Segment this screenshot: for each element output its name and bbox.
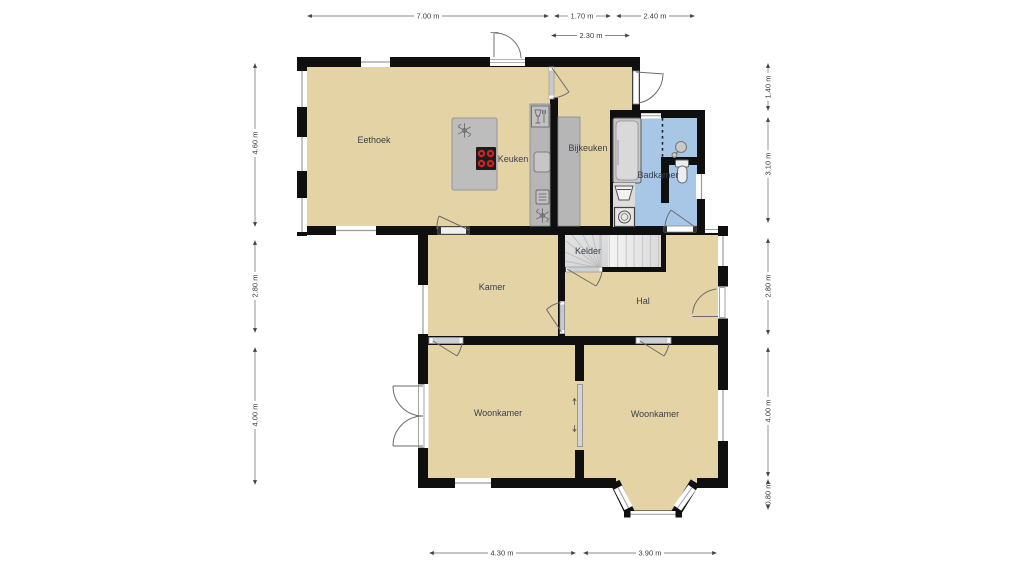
svg-text:Hal: Hal xyxy=(636,296,650,306)
svg-text:2.80 m: 2.80 m xyxy=(764,275,773,298)
svg-text:Bijkeuken: Bijkeuken xyxy=(568,143,607,153)
svg-text:7.00 m: 7.00 m xyxy=(417,12,440,21)
svg-text:4.00 m: 4.00 m xyxy=(251,404,260,427)
svg-text:4.30 m: 4.30 m xyxy=(491,549,514,558)
svg-text:3.10 m: 3.10 m xyxy=(764,153,773,176)
svg-text:Kamer: Kamer xyxy=(479,282,506,292)
svg-text:Woonkamer: Woonkamer xyxy=(631,409,679,419)
svg-text:2.80 m: 2.80 m xyxy=(251,275,260,298)
svg-text:Woonkamer: Woonkamer xyxy=(474,408,522,418)
svg-text:4.60 m: 4.60 m xyxy=(251,132,260,155)
svg-text:2.40 m: 2.40 m xyxy=(644,12,667,21)
svg-text:4.00 m: 4.00 m xyxy=(764,400,773,423)
svg-text:1.70 m: 1.70 m xyxy=(571,12,594,21)
svg-text:0.80 m: 0.80 m xyxy=(764,483,773,506)
svg-text:3.90 m: 3.90 m xyxy=(639,549,662,558)
svg-text:Keuken: Keuken xyxy=(498,154,529,164)
svg-text:Kelder: Kelder xyxy=(575,246,601,256)
svg-text:2.30 m: 2.30 m xyxy=(580,31,603,40)
svg-text:Badkamer: Badkamer xyxy=(637,170,678,180)
svg-text:1.40 m: 1.40 m xyxy=(764,76,773,99)
svg-text:Eethoek: Eethoek xyxy=(357,135,391,145)
